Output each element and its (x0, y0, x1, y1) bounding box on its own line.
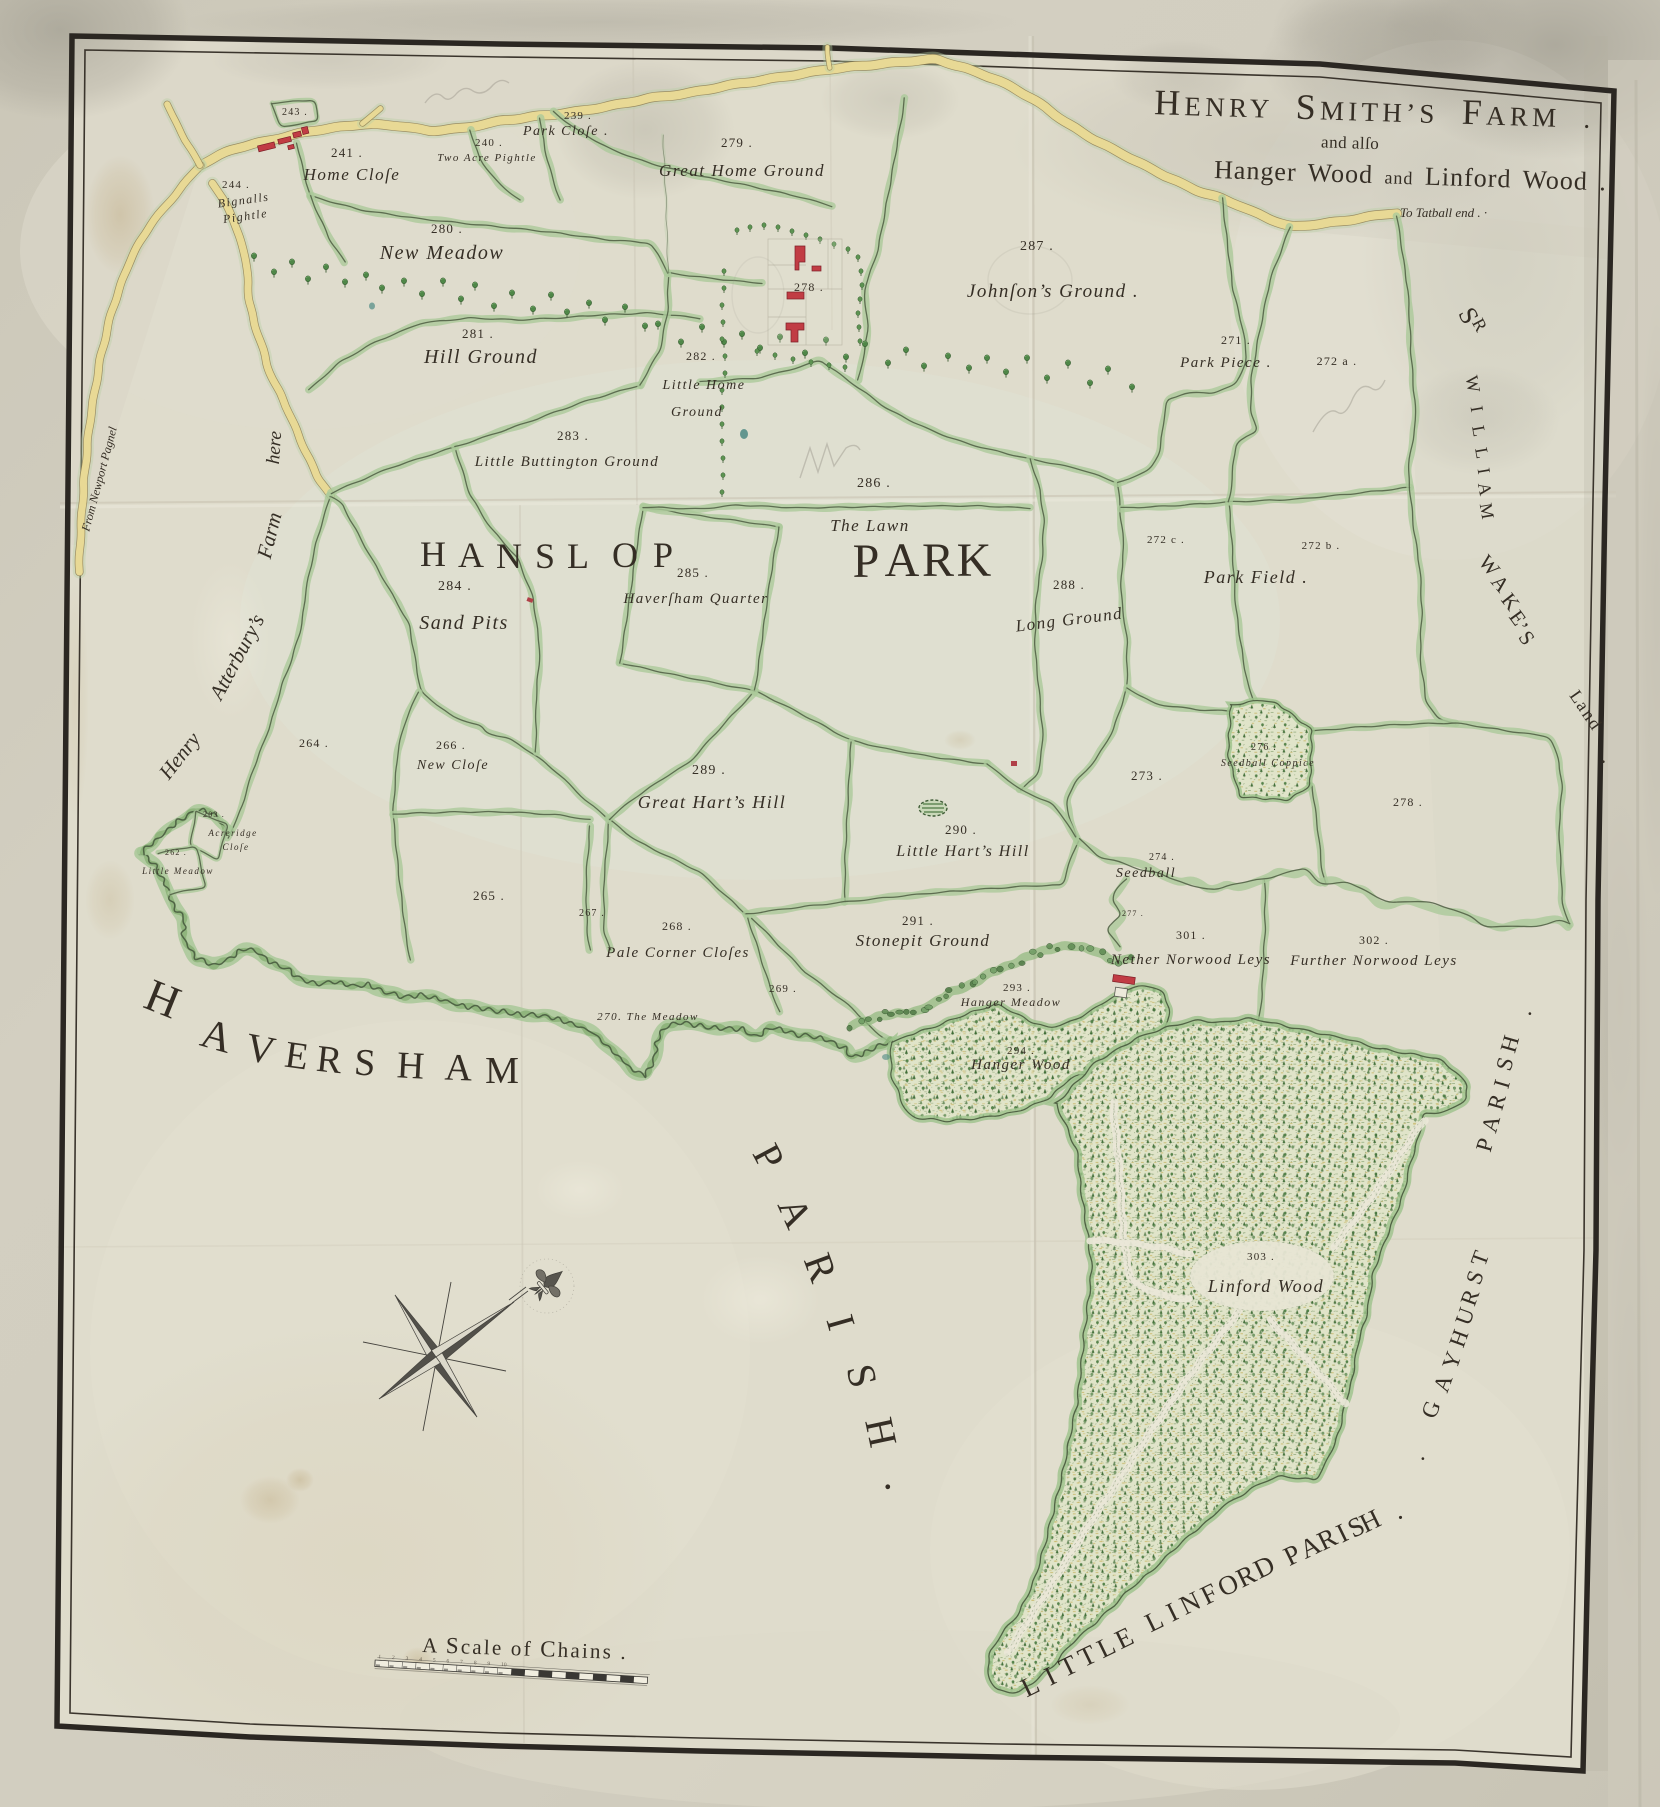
svg-text:272 a .: 272 a . (1317, 354, 1358, 368)
svg-text:240 .: 240 . (475, 137, 503, 149)
svg-text:.: . (1527, 995, 1533, 1020)
svg-text:Great Hart’s Hill: Great Hart’s Hill (638, 792, 787, 812)
svg-text:10: 10 (501, 1662, 507, 1668)
svg-text:M: M (1476, 501, 1498, 520)
svg-text:S: S (535, 536, 555, 576)
svg-text:203 .: 203 . (203, 810, 225, 819)
svg-text:291 .: 291 . (902, 913, 934, 928)
svg-text:Home Cloſe: Home Cloſe (303, 165, 401, 184)
svg-text:To Tatball end . ·: To Tatball end . · (1400, 205, 1487, 220)
svg-text:Great Home Ground: Great Home Ground (659, 161, 825, 180)
svg-text:Little Hart’s Hill: Little Hart’s Hill (895, 843, 1029, 860)
svg-text:Little Buttington Ground: Little Buttington Ground (474, 454, 660, 470)
svg-text:284 .: 284 . (438, 579, 472, 594)
svg-text:K: K (957, 534, 992, 587)
svg-text:Seedball Coppice: Seedball Coppice (1221, 758, 1315, 769)
svg-text:W: W (1462, 374, 1485, 394)
svg-text:285 .: 285 . (677, 565, 709, 580)
svg-text:281 .: 281 . (462, 326, 494, 341)
svg-text:287 .: 287 . (1020, 239, 1054, 254)
svg-text:288 .: 288 . (1053, 577, 1085, 592)
svg-text:271 .: 271 . (1221, 333, 1251, 347)
svg-text:279 .: 279 . (721, 135, 753, 150)
svg-text:241 .: 241 . (331, 145, 363, 160)
svg-text:A: A (444, 1047, 473, 1090)
svg-text:301 .: 301 . (1176, 928, 1206, 942)
svg-text:The Lawn: The Lawn (830, 516, 910, 535)
svg-text:269 .: 269 . (769, 983, 797, 995)
svg-text:262 .: 262 . (165, 848, 187, 857)
svg-text:.: . (1420, 1440, 1426, 1465)
svg-text:283 .: 283 . (557, 428, 589, 443)
svg-text:Hanger Wood: Hanger Wood (970, 1057, 1071, 1073)
svg-text:Little Home: Little Home (662, 378, 746, 393)
svg-text:Pale Corner Cloſes: Pale Corner Cloſes (605, 945, 750, 961)
svg-text:P: P (853, 535, 880, 588)
svg-text:New Cloſe: New Cloſe (416, 758, 489, 773)
svg-text:Seedball: Seedball (1116, 866, 1176, 881)
svg-text:Further Norwood Leys: Further Norwood Leys (1289, 953, 1458, 969)
svg-text:Cloſe: Cloſe (223, 842, 250, 852)
svg-text:L: L (567, 536, 589, 576)
svg-text:289 .: 289 . (692, 763, 726, 778)
svg-text:Hanger Meadow: Hanger Meadow (960, 995, 1062, 1009)
svg-text:Nether Norwood Leys: Nether Norwood Leys (1110, 952, 1271, 968)
svg-text:266 .: 266 . (436, 738, 466, 752)
svg-text:303 .: 303 . (1247, 1251, 1275, 1263)
svg-text:Park Cloſe .: Park Cloſe . (522, 124, 609, 139)
svg-text:274 .: 274 . (1149, 852, 1175, 863)
svg-text:Sand Pits: Sand Pits (419, 612, 509, 634)
svg-text:276 .: 276 . (1251, 742, 1277, 753)
svg-text:282 .: 282 . (686, 349, 716, 363)
svg-text:239 .: 239 . (564, 110, 592, 122)
svg-text:R: R (922, 534, 954, 587)
svg-text:Haverſham Quarter: Haverſham Quarter (622, 591, 768, 607)
svg-text:Stonepit Ground: Stonepit Ground (856, 931, 991, 950)
svg-text:294 .: 294 . (1007, 1045, 1035, 1057)
svg-text:272 b .: 272 b . (1302, 540, 1341, 552)
svg-text:277 .: 277 . (1122, 909, 1144, 918)
svg-text:293 .: 293 . (1003, 982, 1031, 994)
svg-text:Two Acre Pightle: Two Acre Pightle (437, 152, 537, 164)
svg-text:O: O (612, 535, 638, 575)
svg-text:M: M (485, 1050, 519, 1092)
svg-text:A: A (458, 535, 484, 575)
svg-text:P: P (653, 535, 673, 575)
svg-text:290 .: 290 . (945, 822, 977, 837)
svg-text:H: H (420, 534, 446, 574)
svg-text:280 .: 280 . (431, 221, 463, 236)
svg-text:Linford Wood: Linford Wood (1207, 1276, 1324, 1296)
svg-text:267 .: 267 . (579, 908, 605, 919)
svg-text:244 .: 244 . (222, 179, 250, 191)
svg-text:268 .: 268 . (662, 919, 692, 933)
svg-text:Little Meadow: Little Meadow (141, 866, 214, 876)
svg-text:270. The Meadow: 270. The Meadow (597, 1011, 699, 1023)
svg-text:New Meadow: New Meadow (379, 242, 504, 264)
svg-text:Park Piece .: Park Piece . (1179, 355, 1272, 371)
svg-text:H: H (396, 1044, 426, 1087)
svg-text:264 .: 264 . (299, 736, 329, 750)
svg-text:and alſo: and alſo (1321, 132, 1380, 153)
svg-text:here: here (263, 430, 286, 464)
svg-text:286 .: 286 . (857, 476, 891, 491)
svg-text:S: S (353, 1041, 377, 1084)
svg-text:N: N (496, 536, 522, 576)
svg-text:Acreridge: Acreridge (207, 828, 257, 838)
svg-text:302 .: 302 . (1359, 933, 1389, 947)
svg-text:A: A (885, 534, 920, 587)
svg-text:278 .: 278 . (1393, 795, 1423, 809)
svg-text:Hill Ground: Hill Ground (423, 346, 538, 368)
svg-text:Johnſon’s Ground .: Johnſon’s Ground . (967, 281, 1139, 302)
svg-text:Park Field .: Park Field . (1203, 567, 1308, 587)
svg-text:R: R (314, 1038, 344, 1082)
svg-text:278 .: 278 . (794, 280, 824, 294)
svg-text:243 .: 243 . (282, 107, 308, 118)
svg-text:273 .: 273 . (1131, 768, 1163, 783)
svg-text:265 .: 265 . (473, 888, 505, 903)
svg-text:272 c .: 272 c . (1147, 534, 1185, 546)
svg-text:Ground: Ground (671, 405, 723, 420)
